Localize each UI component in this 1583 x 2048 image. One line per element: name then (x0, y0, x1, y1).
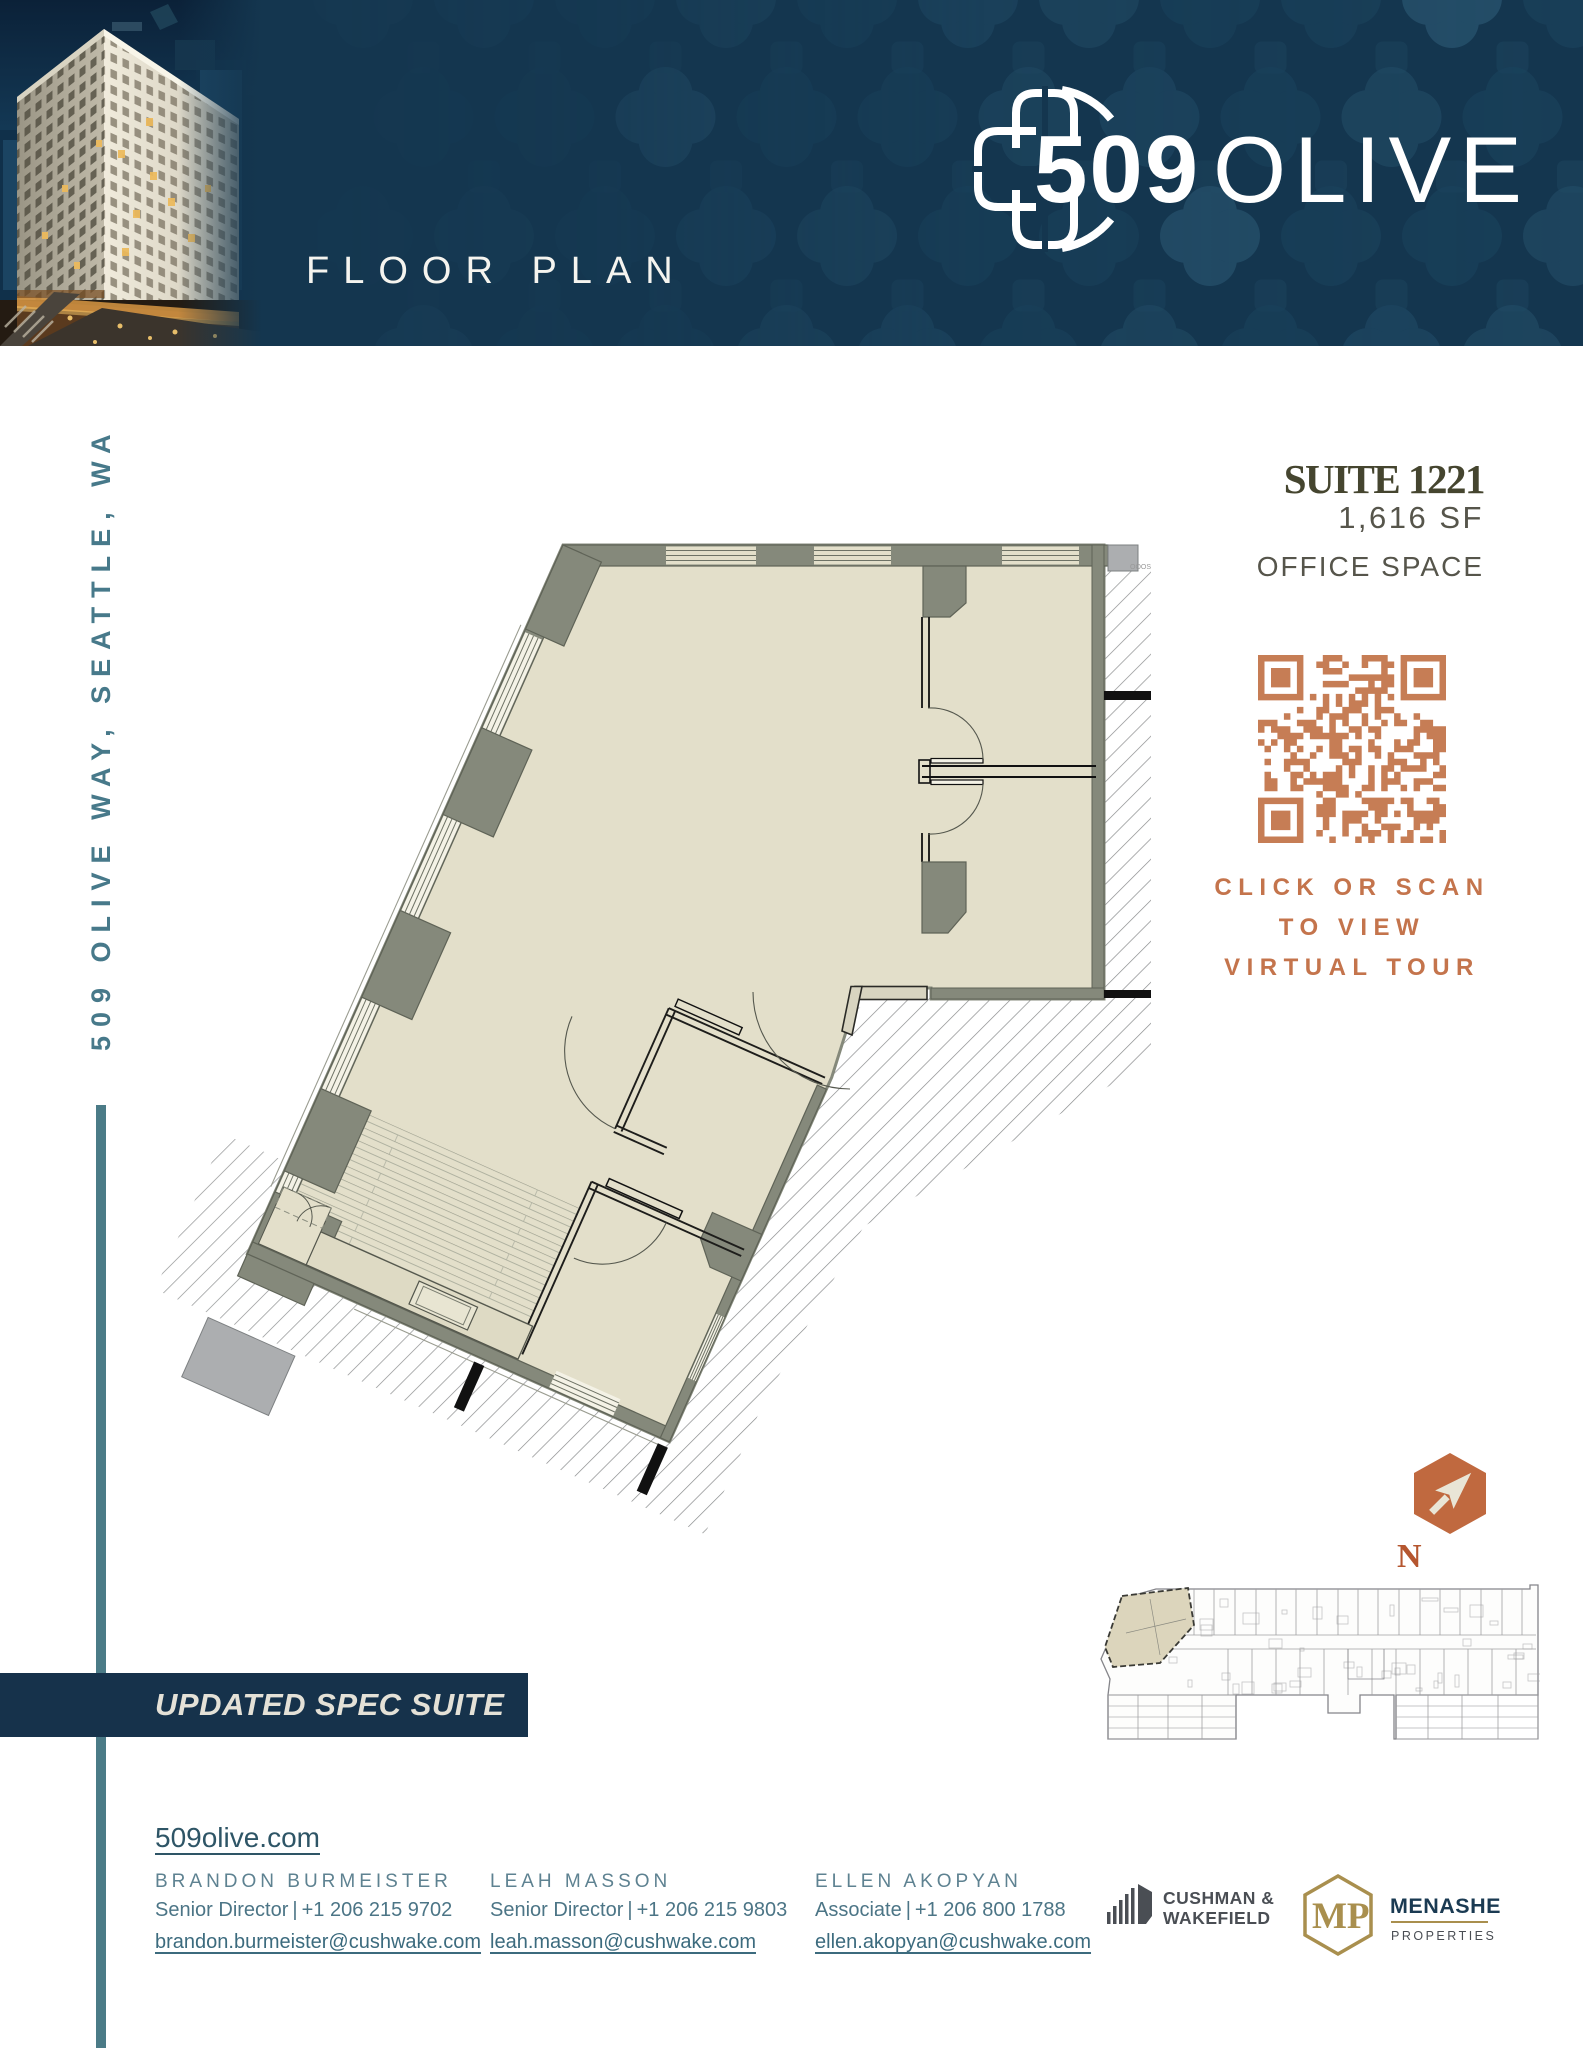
svg-text:OOOS: OOOS (1130, 564, 1151, 571)
svg-text:N: N (1397, 1538, 1422, 1575)
svg-text:WAKEFIELD: WAKEFIELD (1163, 1908, 1271, 1928)
svg-text:MP: MP (1312, 1896, 1370, 1937)
svg-text:PROPERTIES: PROPERTIES (1391, 1929, 1496, 1943)
svg-text:CUSHMAN &: CUSHMAN & (1163, 1888, 1274, 1908)
svg-text:MENASHE: MENASHE (1390, 1894, 1501, 1918)
